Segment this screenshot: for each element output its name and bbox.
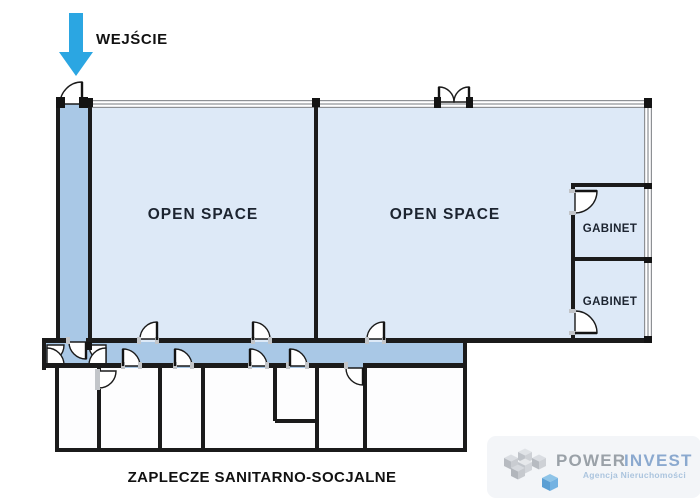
entrance-arrow-icon xyxy=(59,13,93,76)
zaplecze-label: ZAPLECZE SANITARNO-SOCJALNE xyxy=(128,469,397,486)
entrance-label: WEJŚCIE xyxy=(96,30,168,48)
entrance-corridor-floor xyxy=(56,101,90,368)
floor-plan-canvas: WEJŚCIE OPEN SPACE OPEN SPACE GABINET GA… xyxy=(0,0,700,501)
gabinet-top-wall xyxy=(571,183,652,187)
logo-brand-secondary: INVEST xyxy=(624,451,693,470)
logo-tagline: Agencja Nieruchomości xyxy=(583,470,686,480)
backroom-left-door-leaf xyxy=(95,369,100,390)
left-outer-wall xyxy=(56,97,60,342)
logo: POWER INVEST Agencja Nieruchomości xyxy=(487,436,700,498)
open-space-floor xyxy=(56,101,652,342)
bottom-outer-wall xyxy=(55,448,467,452)
backroom-right-wall xyxy=(463,342,467,452)
open-space-2-label: OPEN SPACE xyxy=(390,206,501,223)
backroom-floor xyxy=(55,368,467,452)
entrance-jamb-right xyxy=(79,97,88,108)
corridor-right-wall xyxy=(88,104,92,342)
floor-fills xyxy=(43,101,652,452)
gabinet-bottom-label: GABINET xyxy=(583,296,638,308)
floor-plan-page: WEJŚCIE OPEN SPACE OPEN SPACE GABINET GA… xyxy=(0,0,700,501)
gabinet-divider-wall xyxy=(571,257,652,261)
logo-brand-primary: POWER xyxy=(556,451,626,470)
open-space-divider-wall xyxy=(314,104,318,342)
gabinet-top-label: GABINET xyxy=(583,223,638,235)
open-space-1-label: OPEN SPACE xyxy=(148,206,259,223)
entrance-jamb-left xyxy=(56,97,65,108)
stall-wall xyxy=(275,419,319,423)
double-door-left-arc xyxy=(439,87,454,102)
